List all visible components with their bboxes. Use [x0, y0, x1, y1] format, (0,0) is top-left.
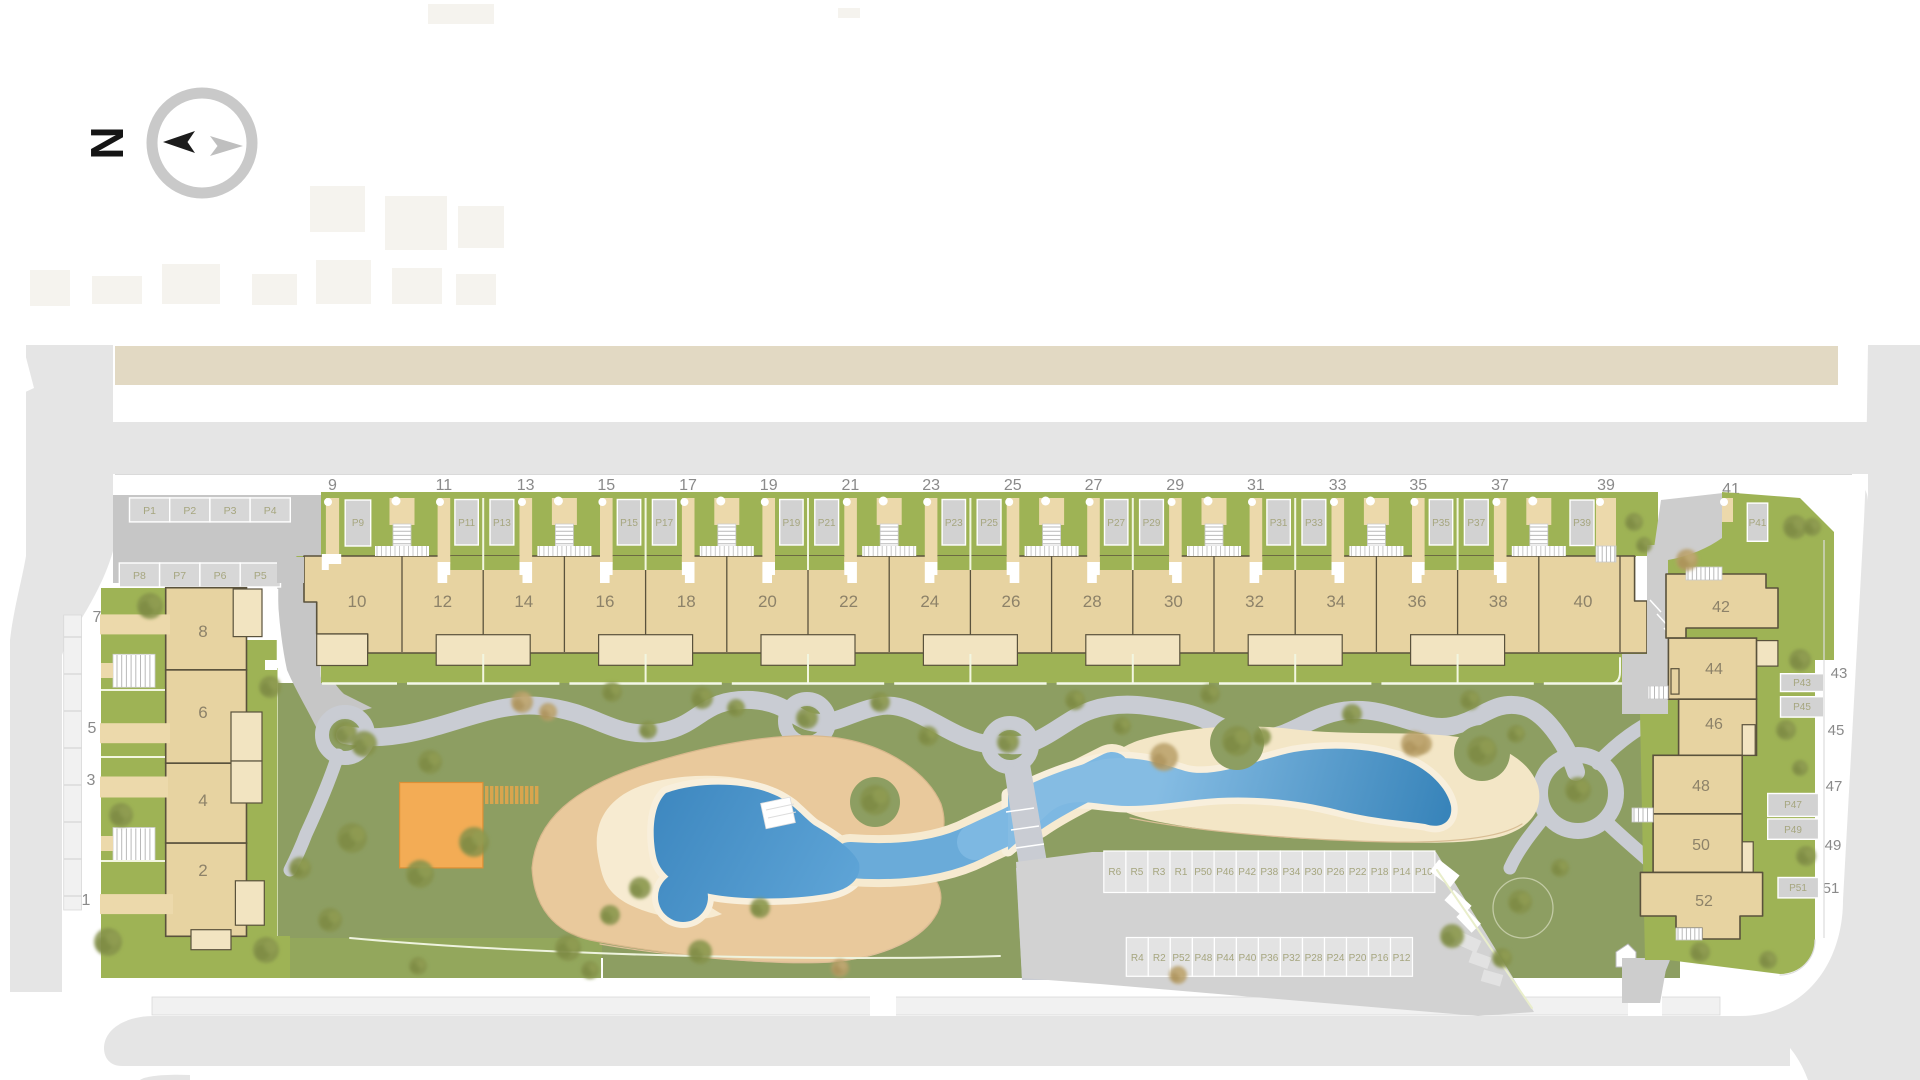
svg-text:P6: P6 [214, 570, 227, 582]
svg-text:1: 1 [82, 892, 91, 909]
svg-text:P51: P51 [1789, 883, 1807, 894]
svg-text:P47: P47 [1784, 800, 1802, 811]
svg-text:P30: P30 [1305, 867, 1323, 878]
svg-text:46: 46 [1705, 716, 1723, 733]
svg-text:P20: P20 [1349, 953, 1367, 964]
svg-text:4: 4 [198, 791, 207, 810]
svg-text:44: 44 [1705, 661, 1723, 678]
svg-text:10: 10 [348, 592, 367, 611]
svg-text:P18: P18 [1371, 867, 1389, 878]
svg-text:P26: P26 [1327, 867, 1345, 878]
svg-text:P35: P35 [1432, 518, 1450, 529]
svg-text:P21: P21 [818, 518, 836, 529]
svg-text:P33: P33 [1305, 518, 1323, 529]
svg-text:P17: P17 [655, 518, 673, 529]
svg-text:N: N [81, 126, 133, 159]
svg-text:38: 38 [1489, 592, 1508, 611]
svg-text:P28: P28 [1305, 953, 1323, 964]
svg-text:52: 52 [1695, 893, 1713, 910]
svg-text:23: 23 [922, 477, 940, 494]
svg-text:28: 28 [1083, 592, 1102, 611]
svg-text:31: 31 [1247, 477, 1265, 494]
svg-text:P43: P43 [1793, 678, 1811, 689]
svg-text:P27: P27 [1107, 518, 1125, 529]
svg-text:40: 40 [1574, 592, 1593, 611]
svg-text:P14: P14 [1393, 867, 1411, 878]
svg-text:P38: P38 [1260, 867, 1278, 878]
svg-text:P52: P52 [1172, 953, 1190, 964]
svg-text:26: 26 [1002, 592, 1021, 611]
svg-text:P50: P50 [1194, 867, 1212, 878]
svg-text:14: 14 [514, 592, 533, 611]
svg-text:P45: P45 [1793, 702, 1811, 713]
svg-text:25: 25 [1004, 477, 1022, 494]
svg-text:32: 32 [1245, 592, 1264, 611]
svg-text:19: 19 [760, 477, 778, 494]
svg-text:P37: P37 [1467, 518, 1485, 529]
svg-text:34: 34 [1326, 592, 1345, 611]
svg-text:P41: P41 [1749, 518, 1767, 529]
svg-text:3: 3 [87, 772, 96, 789]
svg-text:R3: R3 [1153, 867, 1166, 878]
svg-text:P11: P11 [458, 518, 475, 529]
svg-text:P29: P29 [1143, 518, 1161, 529]
svg-text:20: 20 [758, 592, 777, 611]
svg-text:P34: P34 [1283, 867, 1301, 878]
svg-text:P48: P48 [1195, 953, 1213, 964]
svg-text:P23: P23 [945, 518, 963, 529]
svg-text:P4: P4 [264, 505, 277, 517]
svg-text:P22: P22 [1349, 867, 1367, 878]
svg-text:48: 48 [1692, 778, 1710, 795]
svg-text:P36: P36 [1261, 953, 1279, 964]
svg-text:P9: P9 [352, 518, 365, 529]
svg-text:22: 22 [839, 592, 858, 611]
svg-text:13: 13 [517, 477, 535, 494]
svg-text:12: 12 [433, 592, 452, 611]
svg-text:33: 33 [1329, 477, 1347, 494]
svg-text:P31: P31 [1270, 518, 1288, 529]
svg-text:43: 43 [1831, 665, 1848, 682]
svg-text:P2: P2 [183, 505, 196, 517]
svg-text:P15: P15 [620, 518, 638, 529]
svg-text:P16: P16 [1371, 953, 1389, 964]
svg-text:8: 8 [198, 622, 207, 641]
svg-text:2: 2 [198, 861, 207, 880]
svg-text:P40: P40 [1239, 953, 1257, 964]
svg-text:P39: P39 [1573, 518, 1591, 529]
svg-text:49: 49 [1825, 837, 1842, 854]
svg-text:P19: P19 [783, 518, 801, 529]
svg-text:P3: P3 [224, 505, 237, 517]
svg-text:R6: R6 [1108, 867, 1121, 878]
svg-text:18: 18 [677, 592, 696, 611]
svg-text:16: 16 [596, 592, 615, 611]
svg-text:29: 29 [1166, 477, 1184, 494]
svg-text:P49: P49 [1784, 825, 1802, 836]
svg-text:R2: R2 [1153, 953, 1166, 964]
svg-text:P25: P25 [980, 518, 998, 529]
svg-text:P32: P32 [1283, 953, 1301, 964]
svg-text:51: 51 [1823, 880, 1840, 897]
svg-text:15: 15 [597, 477, 615, 494]
svg-text:P8: P8 [133, 570, 146, 582]
svg-text:9: 9 [328, 477, 337, 494]
svg-text:P1: P1 [143, 505, 156, 517]
svg-text:50: 50 [1692, 837, 1710, 854]
svg-text:24: 24 [920, 592, 939, 611]
svg-text:P42: P42 [1238, 867, 1256, 878]
svg-text:P24: P24 [1327, 953, 1345, 964]
svg-text:27: 27 [1085, 477, 1103, 494]
svg-text:30: 30 [1164, 592, 1183, 611]
svg-text:39: 39 [1597, 477, 1615, 494]
svg-text:P5: P5 [254, 570, 267, 582]
svg-text:47: 47 [1826, 778, 1843, 795]
svg-text:6: 6 [198, 703, 207, 722]
svg-text:P44: P44 [1217, 953, 1235, 964]
svg-text:P13: P13 [493, 518, 511, 529]
svg-text:42: 42 [1712, 599, 1730, 616]
svg-text:11: 11 [436, 477, 453, 494]
svg-text:21: 21 [842, 477, 860, 494]
svg-text:45: 45 [1828, 722, 1845, 739]
svg-text:P10: P10 [1415, 867, 1433, 878]
svg-text:P12: P12 [1393, 953, 1411, 964]
svg-text:P46: P46 [1216, 867, 1234, 878]
svg-text:7: 7 [93, 609, 102, 626]
svg-text:R5: R5 [1131, 867, 1144, 878]
svg-text:35: 35 [1409, 477, 1427, 494]
svg-text:37: 37 [1491, 477, 1509, 494]
svg-text:5: 5 [88, 720, 97, 737]
svg-text:17: 17 [679, 477, 697, 494]
svg-text:R1: R1 [1175, 867, 1188, 878]
svg-text:P7: P7 [173, 570, 186, 582]
svg-text:R4: R4 [1131, 953, 1144, 964]
svg-text:36: 36 [1408, 592, 1427, 611]
